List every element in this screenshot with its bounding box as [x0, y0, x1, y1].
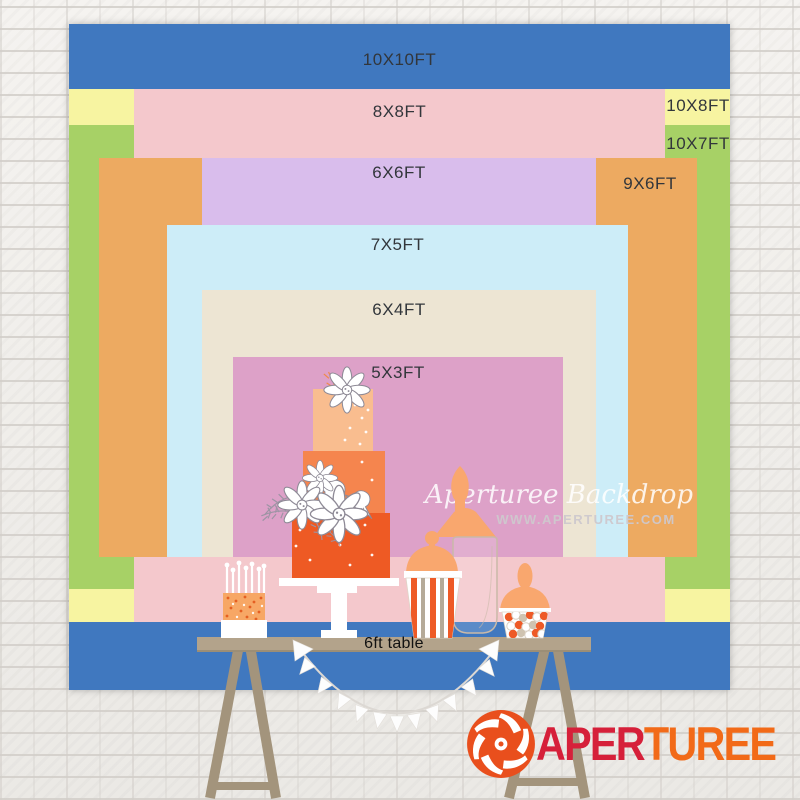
- aperture-shutter-icon: [466, 709, 536, 779]
- size-label-8x8ft: 8X8FT: [134, 102, 665, 122]
- watermark-script: Aperturee Backdrop: [414, 480, 704, 510]
- logo-text-red: APER: [536, 717, 644, 770]
- size-label-7x5ft: 7X5FT: [167, 235, 628, 255]
- size-label-6x4ft: 6X4FT: [202, 300, 596, 320]
- backdrop-rect-5x3ft: [233, 357, 563, 557]
- table-size-label: 6ft table: [197, 635, 591, 653]
- logo-text-orange: TUREE: [644, 717, 775, 770]
- logo-wordmark: APERTUREE: [536, 709, 775, 779]
- size-label-10x7ft: 10X7FT: [663, 134, 733, 154]
- size-label-9x6ft: 9X6FT: [610, 174, 690, 194]
- size-label-6x6ft: 6X6FT: [202, 163, 596, 183]
- backdrop-size-comparison-graphic: Aperturee Backdrop WWW.APERTUREE.COM: [0, 0, 800, 800]
- watermark-url: WWW.APERTUREE.COM: [488, 512, 684, 527]
- size-label-10x8ft: 10X8FT: [665, 96, 731, 116]
- aperturee-logo: APERTUREE: [466, 709, 800, 779]
- size-label-5x3ft: 5X3FT: [233, 363, 563, 383]
- size-label-10x10ft: 10X10FT: [69, 50, 730, 70]
